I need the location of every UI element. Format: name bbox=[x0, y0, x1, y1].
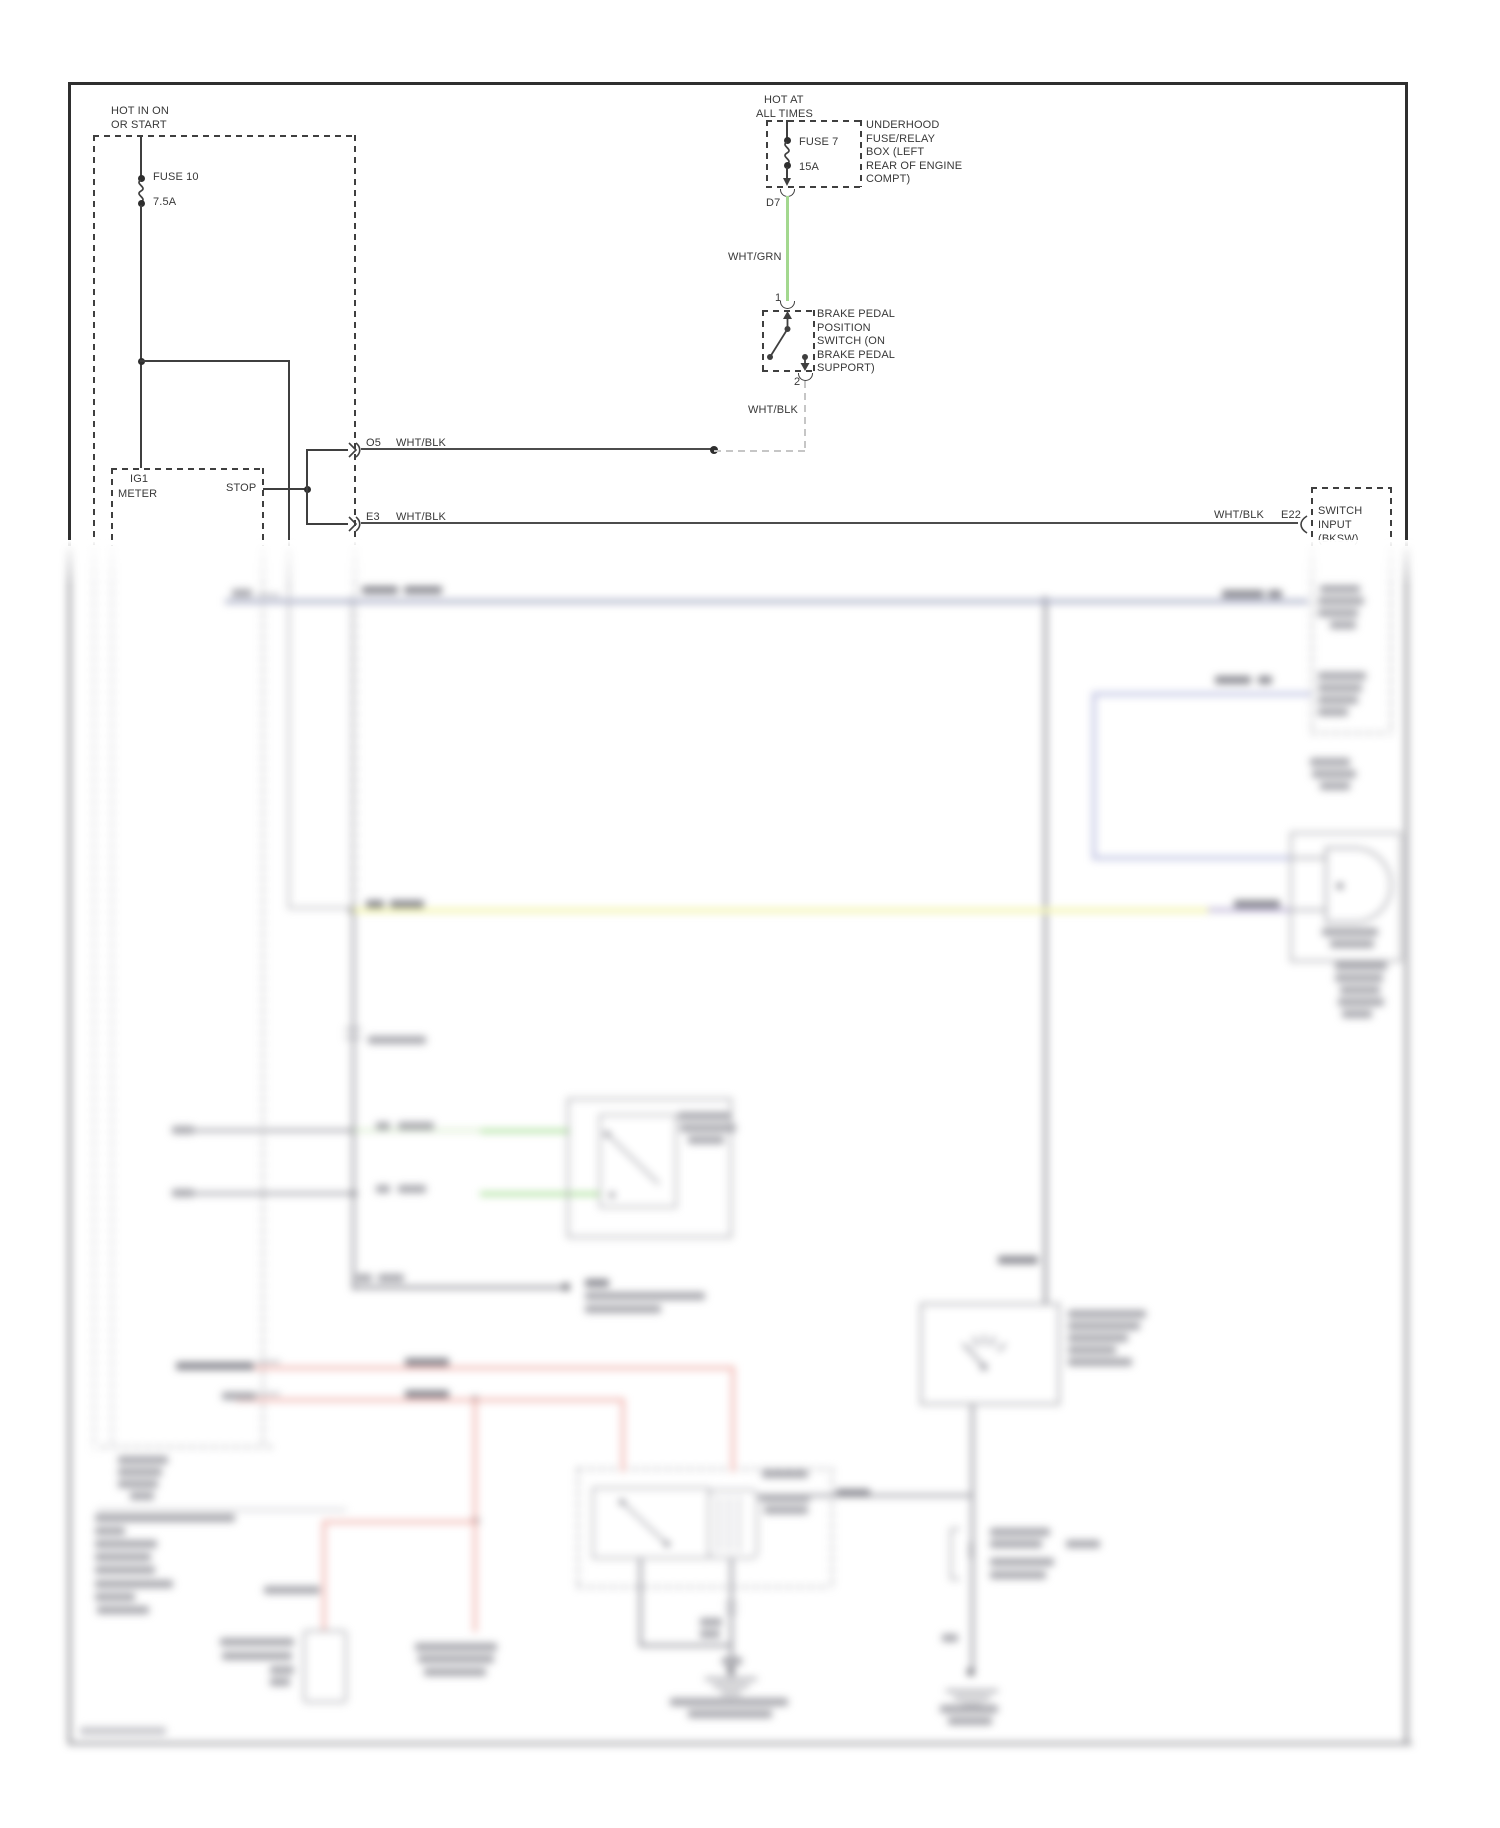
shift-lock-relay-icon bbox=[577, 1468, 832, 1590]
blurred-text bbox=[942, 1634, 958, 1642]
blurred-text bbox=[368, 1036, 426, 1044]
blurred-text bbox=[990, 1528, 1050, 1536]
blurred-wire bbox=[621, 1398, 625, 1472]
wiring-diagram-page: HOT IN ON OR START FUSE 10 7.5A IG1 METE… bbox=[0, 0, 1500, 1828]
blurred-text bbox=[118, 1468, 162, 1476]
blurred-text bbox=[130, 1492, 154, 1500]
blurred-text bbox=[1268, 590, 1282, 598]
blurred-text bbox=[118, 1480, 158, 1488]
blurred-wire bbox=[323, 1520, 475, 1524]
blurred-text bbox=[1338, 998, 1384, 1006]
blurred-wire bbox=[257, 594, 270, 596]
blurred-wire bbox=[1093, 856, 1292, 860]
blurred-dashed-edge bbox=[101, 1446, 272, 1448]
blurred-text bbox=[688, 1136, 724, 1144]
blurred-text bbox=[1318, 672, 1366, 680]
blurred-text bbox=[760, 1494, 810, 1502]
blurred-text bbox=[376, 1185, 390, 1193]
blurred-text bbox=[95, 1527, 125, 1535]
blurred-text bbox=[990, 1558, 1054, 1566]
blurred-wire bbox=[353, 908, 1208, 913]
blurred-dashed-edge bbox=[1390, 546, 1392, 734]
blurred-wire bbox=[1093, 692, 1311, 696]
blurred-text bbox=[1335, 974, 1383, 982]
blurred-text bbox=[1310, 758, 1350, 766]
blurred-text bbox=[1068, 1334, 1128, 1342]
small-component-icon bbox=[303, 1630, 347, 1703]
blurred-text bbox=[990, 1571, 1046, 1579]
blurred-text bbox=[95, 1566, 155, 1574]
blurred-text bbox=[940, 1705, 998, 1713]
blurred-wire bbox=[725, 1611, 737, 1613]
blurred-text bbox=[1320, 585, 1360, 593]
blurred-wire bbox=[1045, 599, 1308, 604]
blurred-text bbox=[762, 1470, 808, 1478]
gauge-icon bbox=[920, 1303, 1060, 1405]
blurred-wire bbox=[480, 1129, 570, 1133]
blurred-wire bbox=[1044, 601, 1047, 1305]
blurred-text bbox=[1318, 696, 1358, 704]
blurred-text bbox=[222, 1392, 256, 1400]
blurred-text bbox=[585, 1305, 661, 1313]
blurred-wire bbox=[68, 546, 71, 1744]
blurred-text bbox=[1330, 940, 1374, 948]
blurred-wire bbox=[351, 601, 353, 910]
blurred-text bbox=[1312, 770, 1356, 778]
blurred-text bbox=[95, 1593, 135, 1601]
blurred-text bbox=[680, 1124, 736, 1132]
blurred-wire bbox=[236, 1398, 624, 1402]
blurred-text bbox=[1318, 708, 1348, 716]
blurred-text bbox=[80, 1727, 166, 1735]
blurred-text bbox=[585, 1292, 705, 1300]
blurred-wire bbox=[640, 1644, 732, 1647]
blurred-dashed-edge bbox=[111, 546, 113, 1445]
blurred-text bbox=[362, 586, 398, 594]
blurred-text bbox=[424, 1668, 486, 1676]
blurred-text bbox=[1340, 986, 1380, 994]
blurred-text bbox=[172, 1189, 194, 1197]
blurred-wire bbox=[950, 1528, 952, 1580]
blurred-wire bbox=[725, 1603, 737, 1605]
blurred-text bbox=[95, 1553, 151, 1561]
blurred-text bbox=[220, 1638, 294, 1646]
blurred-dashed-edge bbox=[1311, 546, 1313, 734]
blurred-wire bbox=[176, 1192, 353, 1195]
blurred-text bbox=[722, 1657, 742, 1665]
blurred-text bbox=[990, 1540, 1042, 1548]
blurred-text bbox=[232, 589, 252, 597]
blurred-dashed-edge bbox=[1311, 732, 1391, 734]
blurred-text bbox=[415, 1643, 497, 1651]
blurred-text bbox=[264, 1586, 320, 1594]
blurred-text bbox=[1318, 597, 1364, 605]
blurred-text bbox=[376, 1122, 390, 1130]
blurred-wire bbox=[176, 1129, 353, 1132]
blurred-text bbox=[405, 1358, 449, 1366]
blurred-wire bbox=[971, 1405, 974, 1674]
blurred-wire bbox=[353, 1286, 567, 1289]
blurred-wire bbox=[322, 1520, 326, 1632]
blurred-dashed-edge bbox=[93, 546, 95, 1450]
blurred-text bbox=[585, 1279, 609, 1287]
blurred-text bbox=[95, 1540, 157, 1548]
blurred-region bbox=[0, 545, 1500, 1828]
blurred-wire bbox=[257, 1361, 270, 1363]
blurred-text bbox=[998, 1256, 1038, 1264]
blurred-wire bbox=[178, 1366, 734, 1370]
blurred-text bbox=[1258, 676, 1272, 684]
blurred-text bbox=[836, 1489, 870, 1497]
blurred-text bbox=[1335, 962, 1387, 970]
blurred-dashed-edge bbox=[262, 546, 264, 1447]
blurred-text bbox=[1342, 1010, 1372, 1018]
blurred-text bbox=[404, 586, 442, 594]
blurred-text bbox=[700, 1630, 720, 1638]
blurred-text bbox=[678, 1112, 730, 1120]
blurred-text bbox=[1215, 676, 1251, 684]
blurred-text bbox=[1066, 1540, 1100, 1548]
blurred-text bbox=[366, 900, 384, 908]
blurred-wire bbox=[288, 907, 353, 909]
blurred-wire bbox=[68, 1742, 1412, 1745]
blurred-text bbox=[118, 1456, 168, 1464]
blurred-text bbox=[95, 1514, 235, 1522]
blurred-text bbox=[764, 1506, 808, 1514]
blurred-text bbox=[1322, 928, 1378, 936]
blurred-wire bbox=[97, 1509, 346, 1511]
blurred-text bbox=[405, 1390, 449, 1398]
blurred-text bbox=[1068, 1310, 1146, 1318]
blurred-text bbox=[418, 1655, 494, 1663]
blurred-text bbox=[1320, 782, 1350, 790]
blurred-text bbox=[670, 1698, 788, 1706]
blurred-text bbox=[398, 1122, 434, 1130]
blurred-text bbox=[1234, 900, 1280, 908]
blurred-wire bbox=[951, 1578, 960, 1580]
blurred-text bbox=[270, 1678, 290, 1686]
blurred-text bbox=[1068, 1322, 1140, 1330]
blurred-text bbox=[948, 1717, 992, 1725]
blurred-text bbox=[95, 1580, 173, 1588]
blurred-wire bbox=[225, 599, 1045, 604]
blurred-wire bbox=[352, 910, 355, 1290]
blurred-text bbox=[97, 1606, 149, 1614]
blurred-text bbox=[270, 1666, 294, 1674]
blurred-text bbox=[1318, 609, 1358, 617]
blurred-text bbox=[1330, 621, 1356, 629]
blurred-text bbox=[1068, 1358, 1132, 1366]
blurred-wire bbox=[731, 1366, 735, 1472]
blurred-text bbox=[390, 900, 424, 908]
blurred-wire bbox=[951, 1528, 960, 1530]
blurred-wire bbox=[1092, 692, 1096, 860]
blurred-text bbox=[398, 1185, 426, 1193]
blurred-text bbox=[688, 1710, 772, 1718]
blurred-text bbox=[176, 1362, 254, 1370]
blurred-text bbox=[172, 1126, 194, 1134]
blurred-text bbox=[356, 1274, 372, 1282]
blurred-wire bbox=[257, 1393, 270, 1395]
blurred-wire bbox=[345, 1037, 361, 1039]
blurred-wire bbox=[1208, 908, 1292, 912]
blurred-wire bbox=[1405, 546, 1408, 1744]
blurred-text bbox=[1222, 590, 1264, 598]
blurred-text bbox=[378, 1274, 404, 1282]
blurred-text bbox=[1068, 1346, 1116, 1354]
blurred-wire bbox=[473, 1398, 477, 1632]
blurred-text bbox=[222, 1652, 292, 1660]
blurred-text bbox=[1318, 684, 1362, 692]
blurred-text bbox=[700, 1618, 722, 1626]
blurred-wire bbox=[345, 1028, 361, 1030]
